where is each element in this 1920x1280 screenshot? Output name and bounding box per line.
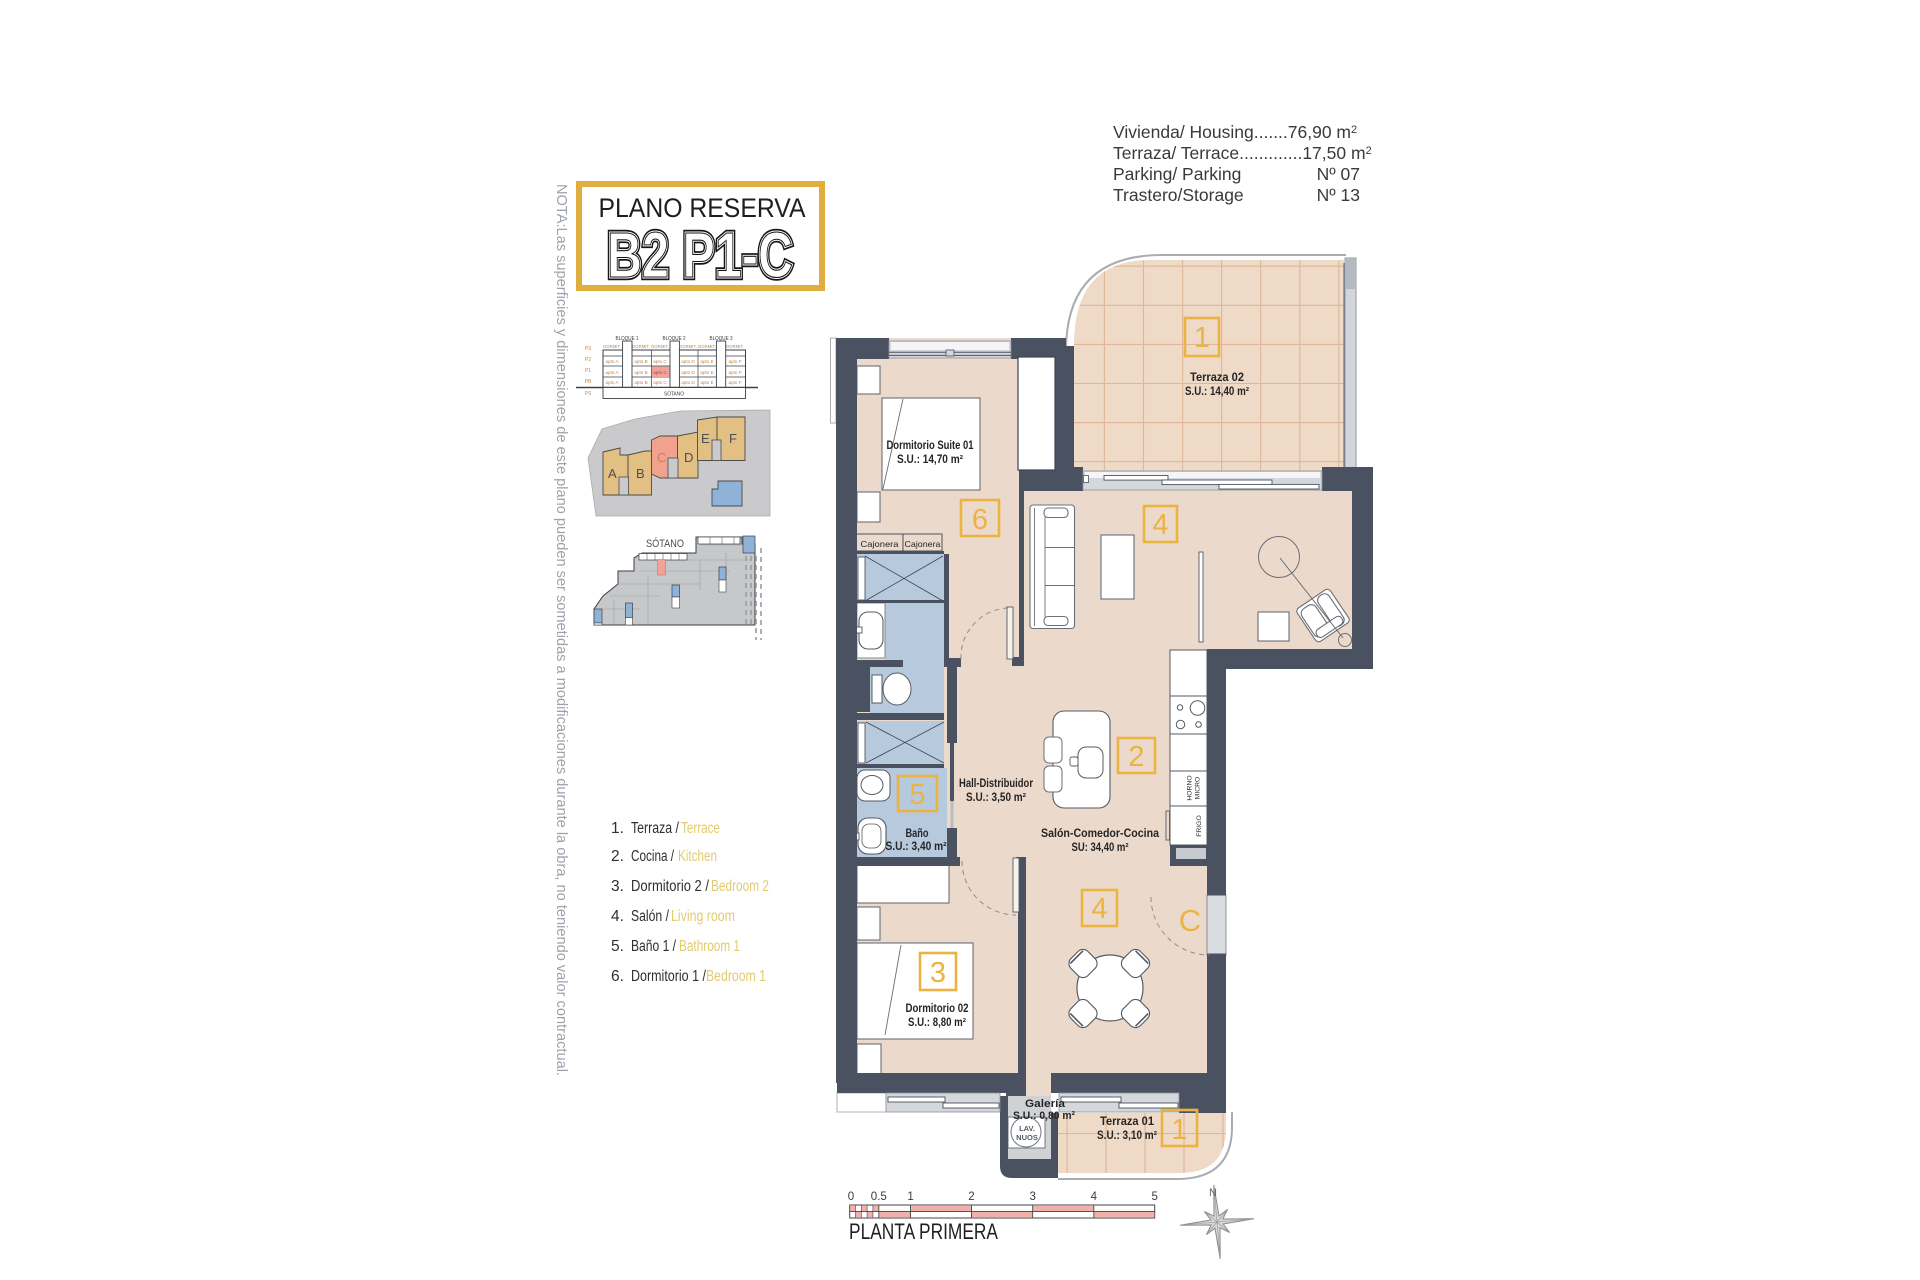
svg-text:1.: 1. bbox=[611, 820, 624, 837]
svg-text:3: 3 bbox=[1029, 1191, 1035, 1203]
svg-text:DORMIT.: DORMIT. bbox=[632, 344, 650, 349]
svg-text:S.U.: 14,70 m²: S.U.: 14,70 m² bbox=[897, 454, 963, 466]
svg-text:Baño: Baño bbox=[906, 828, 929, 840]
svg-text:apto A: apto A bbox=[605, 370, 619, 375]
svg-text:3: 3 bbox=[930, 957, 946, 989]
svg-text:Trastero/Storage: Trastero/Storage bbox=[1113, 185, 1244, 205]
svg-text:SÓTANO: SÓTANO bbox=[664, 391, 685, 398]
svg-text:PB: PB bbox=[585, 379, 592, 385]
svg-text:apto D: apto D bbox=[681, 380, 695, 385]
svg-text:NUOS: NUOS bbox=[1016, 1133, 1038, 1142]
svg-text:Cocina /: Cocina / bbox=[631, 848, 675, 865]
svg-text:N: N bbox=[1209, 1187, 1217, 1199]
svg-text:DORMIT.: DORMIT. bbox=[651, 344, 669, 349]
svg-text:Terraza /: Terraza / bbox=[631, 820, 680, 837]
svg-text:Vivienda/ Housing.......76,90: Vivienda/ Housing.......76,90 m2 bbox=[1113, 122, 1357, 142]
svg-text:LAV.: LAV. bbox=[1019, 1124, 1035, 1133]
svg-text:4: 4 bbox=[1091, 893, 1107, 925]
svg-text:P2: P2 bbox=[585, 357, 591, 363]
svg-text:S.U.: 3,10 m²: S.U.: 3,10 m² bbox=[1097, 1130, 1157, 1142]
svg-text:C: C bbox=[657, 450, 666, 465]
svg-text:Terraza 01: Terraza 01 bbox=[1100, 1116, 1155, 1128]
svg-text:Galería: Galería bbox=[1025, 1098, 1066, 1110]
svg-text:S.U.: 0,80 m²: S.U.: 0,80 m² bbox=[1013, 1110, 1075, 1122]
svg-text:NOTA:Las superficies y dimensi: NOTA:Las superficies y dimensiones de es… bbox=[553, 184, 570, 1076]
svg-text:Terraza/ Terrace.............1: Terraza/ Terrace.............17,50 m2 bbox=[1113, 143, 1372, 163]
svg-text:Terrace: Terrace bbox=[681, 820, 720, 837]
svg-text:Cajonera: Cajonera bbox=[905, 539, 941, 549]
svg-text:apto C: apto C bbox=[653, 370, 667, 375]
svg-text:Cajonera: Cajonera bbox=[861, 539, 899, 549]
svg-text:PLANTA PRIMERA: PLANTA PRIMERA bbox=[849, 1219, 998, 1244]
svg-text:S.U.: 8,80 m²: S.U.: 8,80 m² bbox=[908, 1017, 966, 1029]
svg-text:S.U.: 3,40 m²: S.U.: 3,40 m² bbox=[886, 841, 947, 853]
svg-text:apto C: apto C bbox=[653, 380, 667, 385]
svg-text:1: 1 bbox=[1171, 1114, 1187, 1146]
svg-text:C: C bbox=[1179, 903, 1201, 938]
svg-text:MICRO: MICRO bbox=[1195, 777, 1202, 800]
svg-text:apto A: apto A bbox=[605, 359, 619, 364]
svg-text:apto D: apto D bbox=[681, 359, 695, 364]
svg-text:6.: 6. bbox=[611, 968, 624, 985]
svg-text:Living room: Living room bbox=[671, 908, 735, 925]
svg-text:0: 0 bbox=[848, 1191, 854, 1203]
svg-text:PS: PS bbox=[585, 391, 592, 397]
svg-text:FRIGO: FRIGO bbox=[1196, 815, 1203, 837]
svg-text:5.: 5. bbox=[611, 938, 624, 955]
svg-text:Bedroom 2: Bedroom 2 bbox=[711, 878, 769, 895]
svg-text:DORMIT.: DORMIT. bbox=[726, 344, 744, 349]
svg-text:D: D bbox=[684, 450, 693, 465]
svg-text:apto C: apto C bbox=[653, 359, 667, 364]
svg-text:B: B bbox=[636, 466, 645, 481]
svg-text:Dormitorio 2 /: Dormitorio 2 / bbox=[631, 878, 710, 895]
svg-text:E: E bbox=[701, 431, 710, 446]
svg-text:P3: P3 bbox=[585, 346, 591, 352]
svg-text:DORMIT.: DORMIT. bbox=[698, 344, 716, 349]
svg-text:SU: 34,40 m²: SU: 34,40 m² bbox=[1072, 842, 1129, 854]
svg-text:2: 2 bbox=[968, 1191, 974, 1203]
svg-text:1: 1 bbox=[1194, 322, 1210, 354]
svg-text:SÓTANO: SÓTANO bbox=[646, 537, 684, 550]
svg-text:Bathroom 1: Bathroom 1 bbox=[679, 938, 740, 955]
svg-text:Salón-Comedor-Cocina: Salón-Comedor-Cocina bbox=[1041, 828, 1160, 840]
svg-text:Kitchen: Kitchen bbox=[678, 848, 717, 865]
svg-text:2: 2 bbox=[1128, 741, 1144, 773]
svg-text:1: 1 bbox=[907, 1191, 913, 1203]
svg-text:apto B: apto B bbox=[634, 359, 647, 364]
svg-text:0.5: 0.5 bbox=[871, 1191, 887, 1203]
svg-text:Dormitorio Suite 01: Dormitorio Suite 01 bbox=[887, 440, 974, 452]
svg-text:4: 4 bbox=[1091, 1191, 1098, 1203]
svg-text:B2 P1-C: B2 P1-C bbox=[607, 219, 793, 291]
svg-text:HORNO: HORNO bbox=[1187, 775, 1194, 800]
svg-text:Salón /: Salón / bbox=[631, 908, 670, 925]
svg-text:Baño 1 /: Baño 1 / bbox=[631, 938, 677, 955]
svg-text:4.: 4. bbox=[611, 908, 624, 925]
svg-text:apto B: apto B bbox=[634, 380, 647, 385]
svg-text:6: 6 bbox=[972, 504, 988, 536]
svg-text:3.: 3. bbox=[611, 878, 624, 895]
svg-text:A: A bbox=[608, 466, 617, 481]
svg-text:apto F: apto F bbox=[728, 380, 741, 385]
svg-text:DORMIT.: DORMIT. bbox=[679, 344, 697, 349]
svg-text:S.U.: 14,40 m²: S.U.: 14,40 m² bbox=[1185, 386, 1249, 398]
svg-text:DORMIT.: DORMIT. bbox=[603, 344, 621, 349]
svg-text:apto E: apto E bbox=[700, 359, 713, 364]
svg-text:apto B: apto B bbox=[634, 370, 647, 375]
svg-text:apto F: apto F bbox=[728, 370, 741, 375]
svg-text:apto F: apto F bbox=[728, 359, 741, 364]
svg-text:Dormitorio 1 /: Dormitorio 1 / bbox=[631, 968, 707, 985]
svg-text:apto E: apto E bbox=[700, 380, 713, 385]
svg-text:4: 4 bbox=[1152, 509, 1168, 541]
svg-text:apto A: apto A bbox=[605, 380, 619, 385]
svg-text:Hall-Distribuidor: Hall-Distribuidor bbox=[959, 778, 1033, 790]
svg-text:Nº 07: Nº 07 bbox=[1317, 164, 1360, 184]
svg-text:5: 5 bbox=[909, 779, 925, 811]
svg-text:P1: P1 bbox=[585, 368, 591, 374]
svg-text:Bedroom 1: Bedroom 1 bbox=[706, 968, 766, 985]
svg-text:Terraza 02: Terraza 02 bbox=[1190, 372, 1244, 384]
svg-text:apto E: apto E bbox=[700, 370, 713, 375]
svg-text:F: F bbox=[729, 431, 737, 446]
svg-text:Parking/ Parking: Parking/ Parking bbox=[1113, 164, 1241, 184]
svg-text:apto D: apto D bbox=[681, 370, 695, 375]
svg-text:Nº 13: Nº 13 bbox=[1317, 185, 1360, 205]
svg-text:5: 5 bbox=[1151, 1191, 1157, 1203]
svg-text:Dormitorio 02: Dormitorio 02 bbox=[906, 1003, 969, 1015]
svg-text:S.U.: 3,50 m²: S.U.: 3,50 m² bbox=[966, 792, 1026, 804]
svg-text:2.: 2. bbox=[611, 848, 624, 865]
